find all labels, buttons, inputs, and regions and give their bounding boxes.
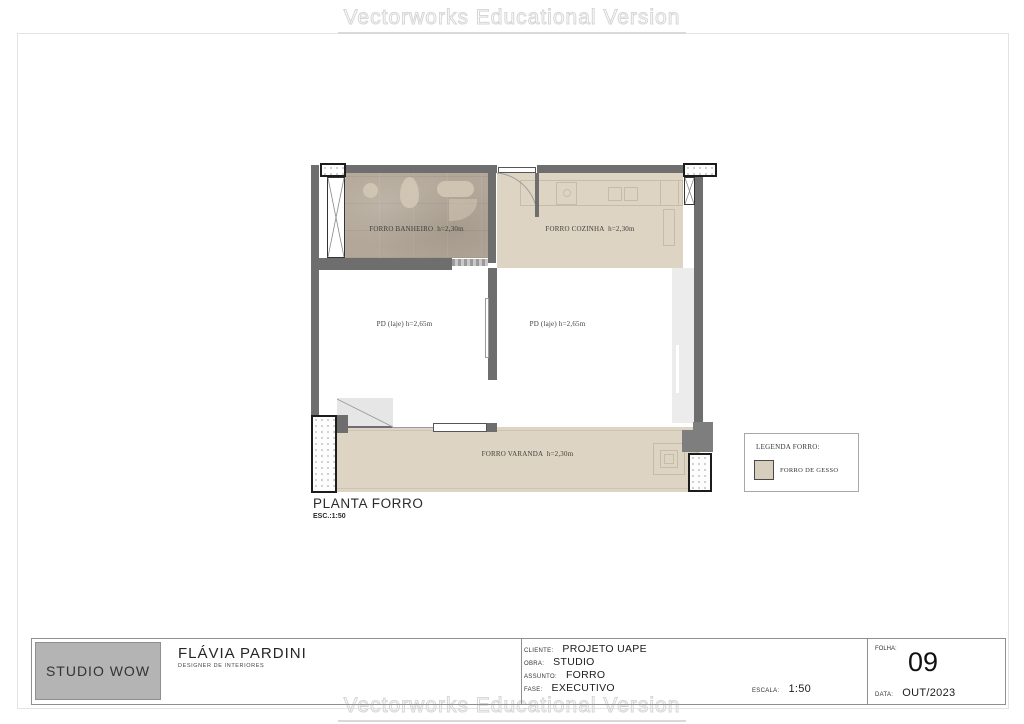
legend-swatch-gesso — [754, 460, 774, 480]
room-label-pd-right: PD (laje) h=2,65m — [495, 320, 620, 328]
field-assunto-value: FORRO — [566, 669, 605, 681]
field-obra-label: OBRA: — [524, 661, 544, 667]
title-block-divider-2 — [867, 639, 868, 704]
room-label-banheiro: FORRO BANHEIRO h=2,30m — [345, 225, 488, 233]
field-fase-label: FASE: — [524, 687, 543, 693]
plan-title: PLANTA FORRO — [313, 496, 423, 511]
field-obra: OBRA: STUDIO — [524, 656, 595, 668]
field-escala-value: 1:50 — [788, 683, 811, 695]
legend-box: LEGENDA FORRO: FORRO DE GESSO — [744, 433, 859, 492]
legend-title: LEGENDA FORRO: — [756, 443, 820, 451]
field-cliente-label: CLIENTE: — [524, 648, 553, 654]
field-assunto: ASSUNTO: FORRO — [524, 669, 605, 681]
drawing-sheet: Vectorworks Educational Version Vectorwo… — [0, 0, 1024, 724]
field-data: DATA: OUT/2023 — [875, 687, 955, 699]
designer-title: DESIGNER DE INTERIORES — [178, 663, 264, 669]
field-fase: FASE: EXECUTIVO — [524, 682, 615, 694]
field-folha-label: FOLHA: — [875, 646, 897, 652]
field-escala: ESCALA: 1:50 — [752, 683, 811, 695]
field-escala-label: ESCALA: — [752, 688, 779, 694]
designer-name: FLÁVIA PARDINI — [178, 645, 307, 662]
field-data-label: DATA: — [875, 692, 893, 698]
field-cliente-value: PROJETO UAPE — [562, 643, 647, 655]
room-label-pd-left: PD (laje) h=2,65m — [321, 320, 488, 328]
plan-linework — [310, 160, 720, 500]
watermark-top: Vectorworks Educational Version — [0, 6, 1024, 34]
field-data-value: OUT/2023 — [902, 687, 955, 699]
field-fase-value: EXECUTIVO — [552, 682, 615, 694]
room-label-varanda: FORRO VARANDA h=2,30m — [430, 450, 625, 458]
floor-plan: FORRO BANHEIRO h=2,30m FORRO COZINHA h=2… — [310, 160, 720, 500]
field-cliente: CLIENTE: PROJETO UAPE — [524, 643, 647, 655]
room-label-cozinha: FORRO COZINHA h=2,30m — [497, 225, 683, 233]
field-obra-value: STUDIO — [553, 656, 594, 668]
title-block-divider-1 — [521, 639, 522, 704]
field-assunto-label: ASSUNTO: — [524, 674, 557, 680]
title-block: STUDIO WOW FLÁVIA PARDINI DESIGNER DE IN… — [31, 638, 1006, 705]
plan-scale-note: ESC.:1:50 — [313, 513, 346, 520]
legend-item-label: FORRO DE GESSO — [780, 467, 838, 474]
field-folha-value: 09 — [908, 647, 938, 678]
company-logo: STUDIO WOW — [35, 642, 161, 700]
